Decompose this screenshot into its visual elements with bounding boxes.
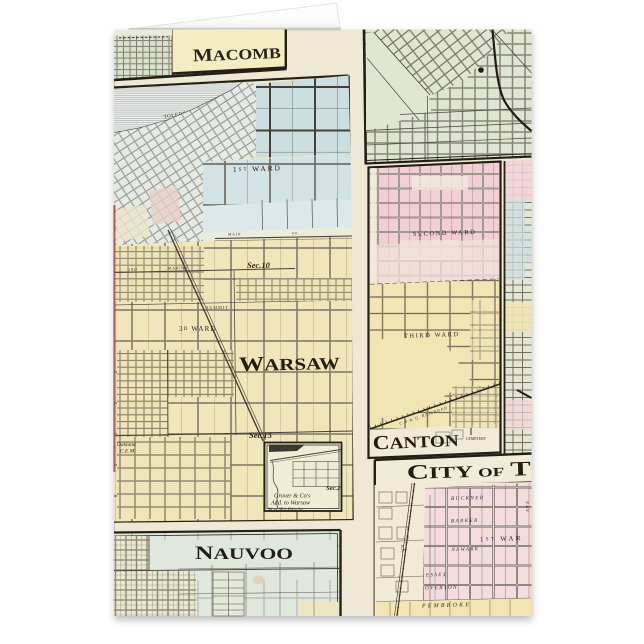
svg-text:R.R.: R.R. [400, 545, 406, 554]
svg-text:Sec.2: Sec.2 [326, 485, 341, 492]
svg-text:BARKER: BARKER [451, 518, 479, 525]
svg-text:MARINA: MARINA [168, 266, 188, 271]
svg-text:Grover & Co's: Grover & Co's [274, 493, 311, 500]
svg-text:AVE: AVE [525, 500, 530, 513]
svg-text:BUCKNER: BUCKNER [451, 495, 485, 502]
svg-text:ESSEX: ESSEX [425, 573, 447, 579]
svg-text:NAUVOO: NAUVOO [195, 544, 293, 564]
svg-text:OVERTON: OVERTON [425, 585, 458, 592]
svg-text:Sec.10: Sec.10 [247, 260, 271, 270]
svg-text:Sec.15: Sec.15 [249, 430, 273, 440]
svg-text:SUMMIT: SUMMIT [206, 305, 229, 310]
svg-text:Sd. at SE¼ XW¼ Sec.: Sd. at SE¼ XW¼ Sec. [268, 506, 305, 511]
svg-text:WARSAW: WARSAW [239, 352, 340, 376]
svg-text:NEWARK: NEWARK [450, 547, 479, 553]
svg-text:CEMETERY: CEMETERY [466, 437, 487, 441]
svg-text:MAIN: MAIN [228, 232, 241, 236]
svg-text:2ND: 2ND [128, 268, 138, 272]
svg-text:C.E.M.: C.E.M. [120, 449, 135, 455]
svg-text:CITY OF T: CITY OF T [406, 458, 531, 484]
svg-text:ST.: ST. [292, 231, 300, 235]
svg-text:Oakland: Oakland [117, 442, 136, 448]
